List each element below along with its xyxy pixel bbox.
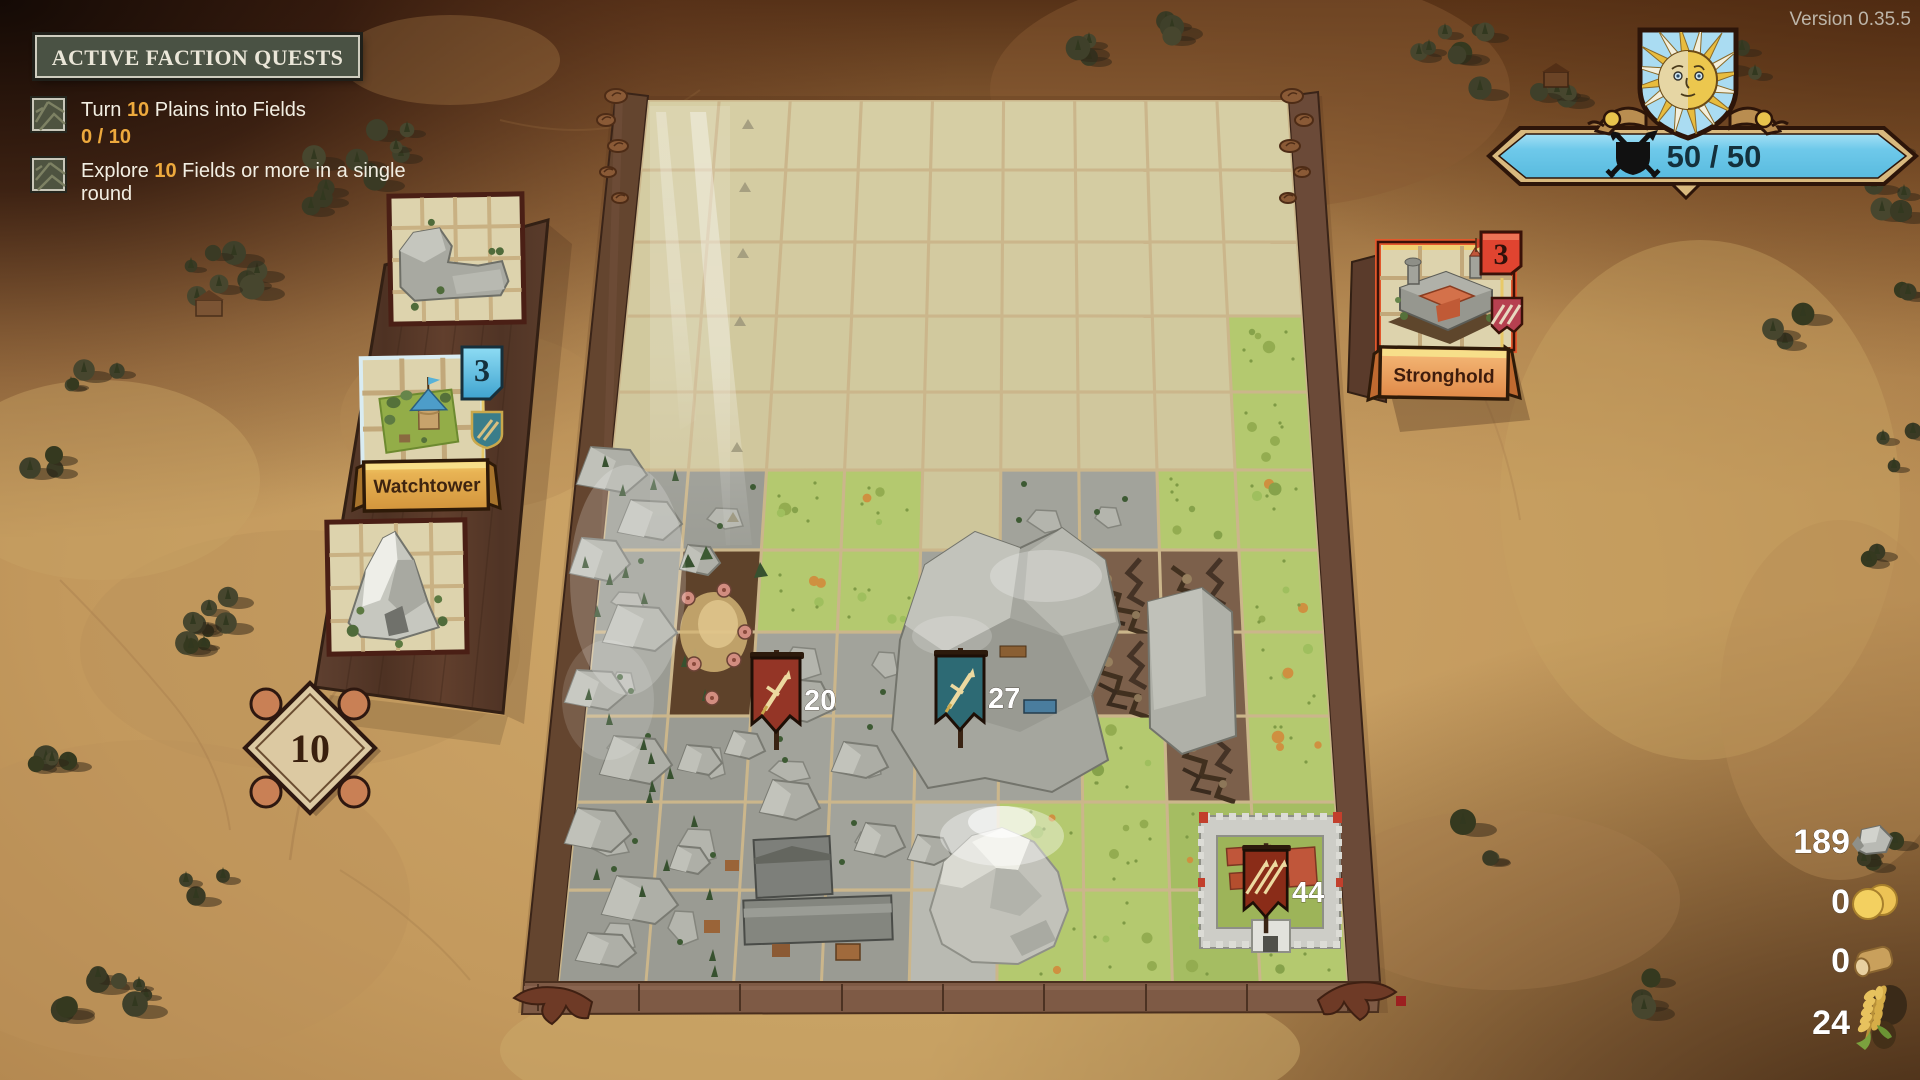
svg-text:3: 3 [474,352,490,388]
svg-text:44: 44 [1292,877,1324,909]
svg-text:Watchtower: Watchtower [373,475,481,498]
svg-text:20: 20 [804,685,836,717]
svg-text:189: 189 [1793,823,1850,861]
svg-text:3: 3 [1494,238,1509,271]
svg-text:10: 10 [290,726,330,771]
svg-text:0: 0 [1831,883,1850,921]
svg-text:50 / 50: 50 / 50 [1667,139,1762,174]
svg-text:Stronghold: Stronghold [1393,365,1495,388]
svg-text:24: 24 [1812,1004,1850,1042]
svg-text:27: 27 [988,683,1020,715]
svg-text:0: 0 [1831,942,1850,980]
